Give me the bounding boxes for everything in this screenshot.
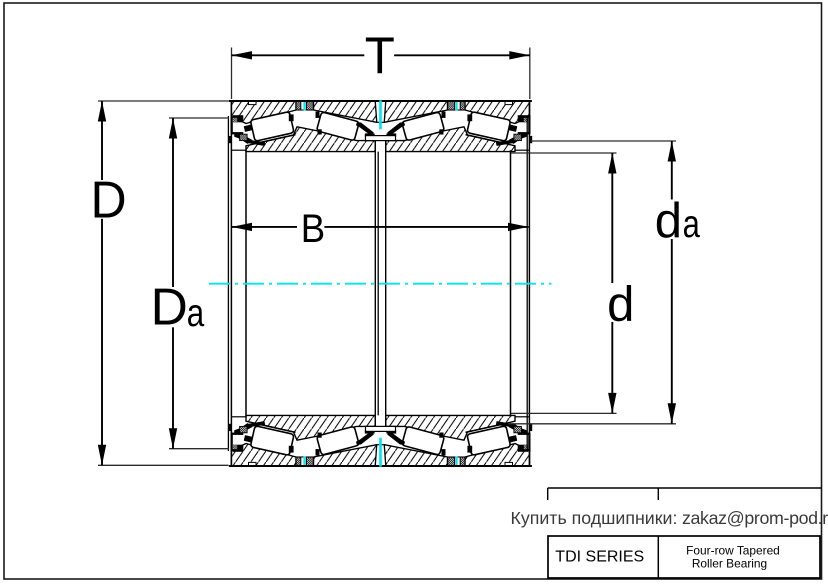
svg-text:a: a <box>683 203 701 246</box>
svg-text:TDI SERIES: TDI SERIES <box>555 548 644 565</box>
svg-text:D: D <box>91 170 127 228</box>
svg-text:B: B <box>301 206 325 251</box>
svg-text:Купить подшипники: zakaz@prom-: Купить подшипники: zakaz@prom-pod.ru <box>511 508 828 528</box>
svg-text:D: D <box>151 277 188 335</box>
svg-text:d: d <box>655 194 682 248</box>
svg-text:a: a <box>187 292 205 335</box>
svg-text:d: d <box>607 277 634 331</box>
svg-text:Four-row Tapered: Four-row Tapered <box>686 543 780 557</box>
svg-text:Roller Bearing: Roller Bearing <box>692 556 767 570</box>
svg-text:T: T <box>365 26 395 85</box>
